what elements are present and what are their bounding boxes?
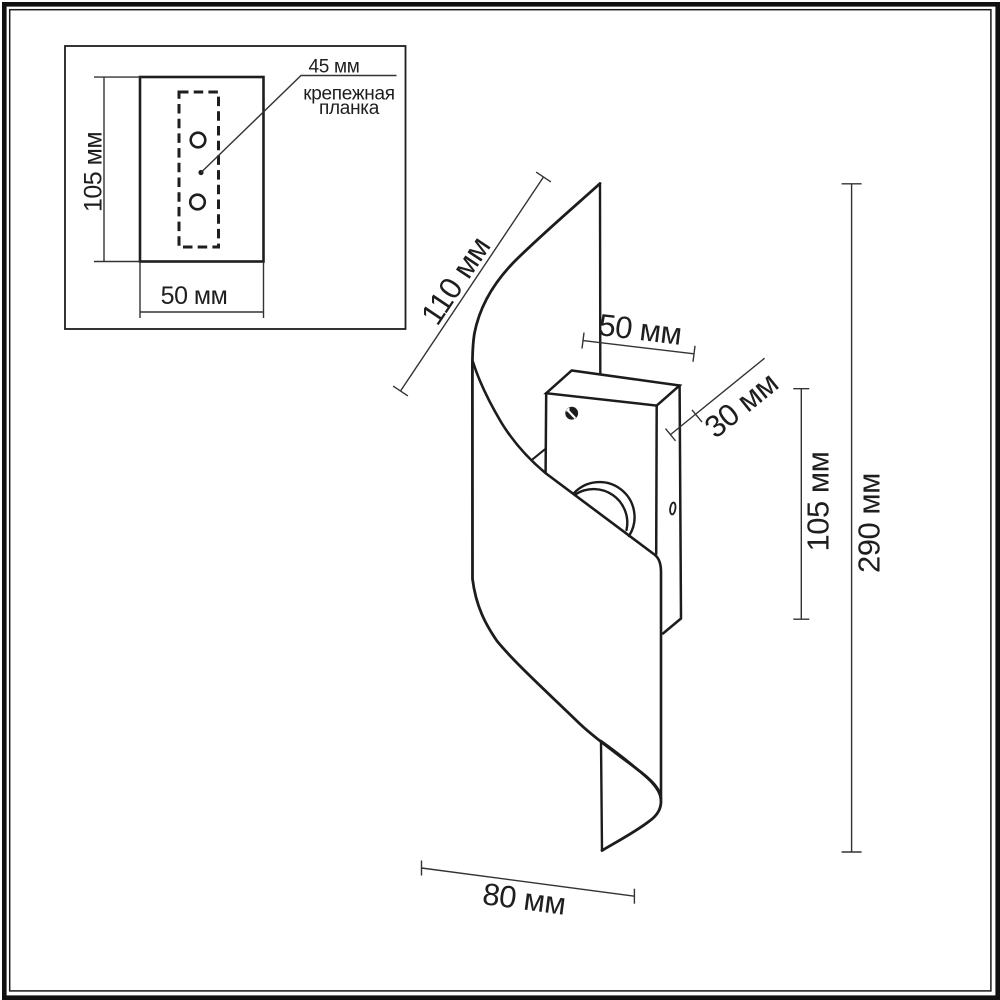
svg-text:45 мм: 45 мм: [308, 57, 359, 78]
svg-text:105 мм: 105 мм: [80, 132, 108, 212]
svg-text:планка: планка: [319, 98, 380, 119]
svg-text:290 мм: 290 мм: [852, 473, 887, 573]
svg-text:105 мм: 105 мм: [801, 452, 836, 552]
svg-text:50 мм: 50 мм: [161, 282, 228, 310]
